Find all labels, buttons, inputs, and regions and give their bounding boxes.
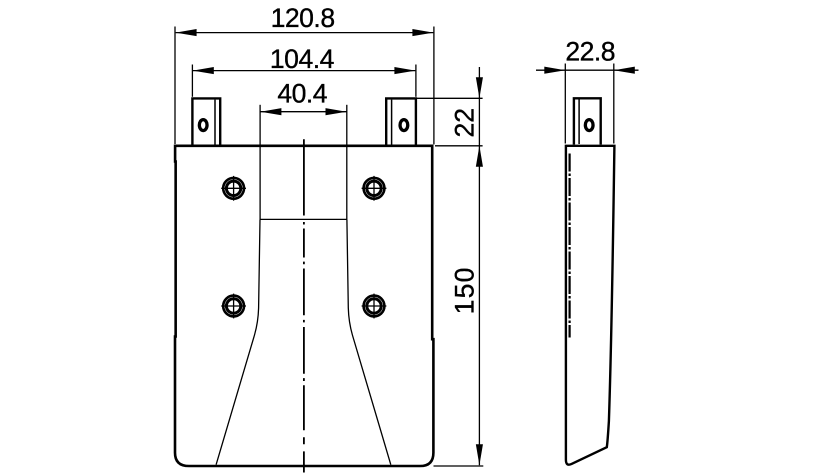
svg-text:22: 22	[449, 108, 479, 138]
svg-text:40.4: 40.4	[277, 78, 327, 108]
svg-text:120.8: 120.8	[271, 3, 335, 33]
svg-text:104.4: 104.4	[270, 44, 335, 74]
svg-text:22.8: 22.8	[565, 36, 615, 66]
svg-text:150: 150	[449, 266, 479, 314]
